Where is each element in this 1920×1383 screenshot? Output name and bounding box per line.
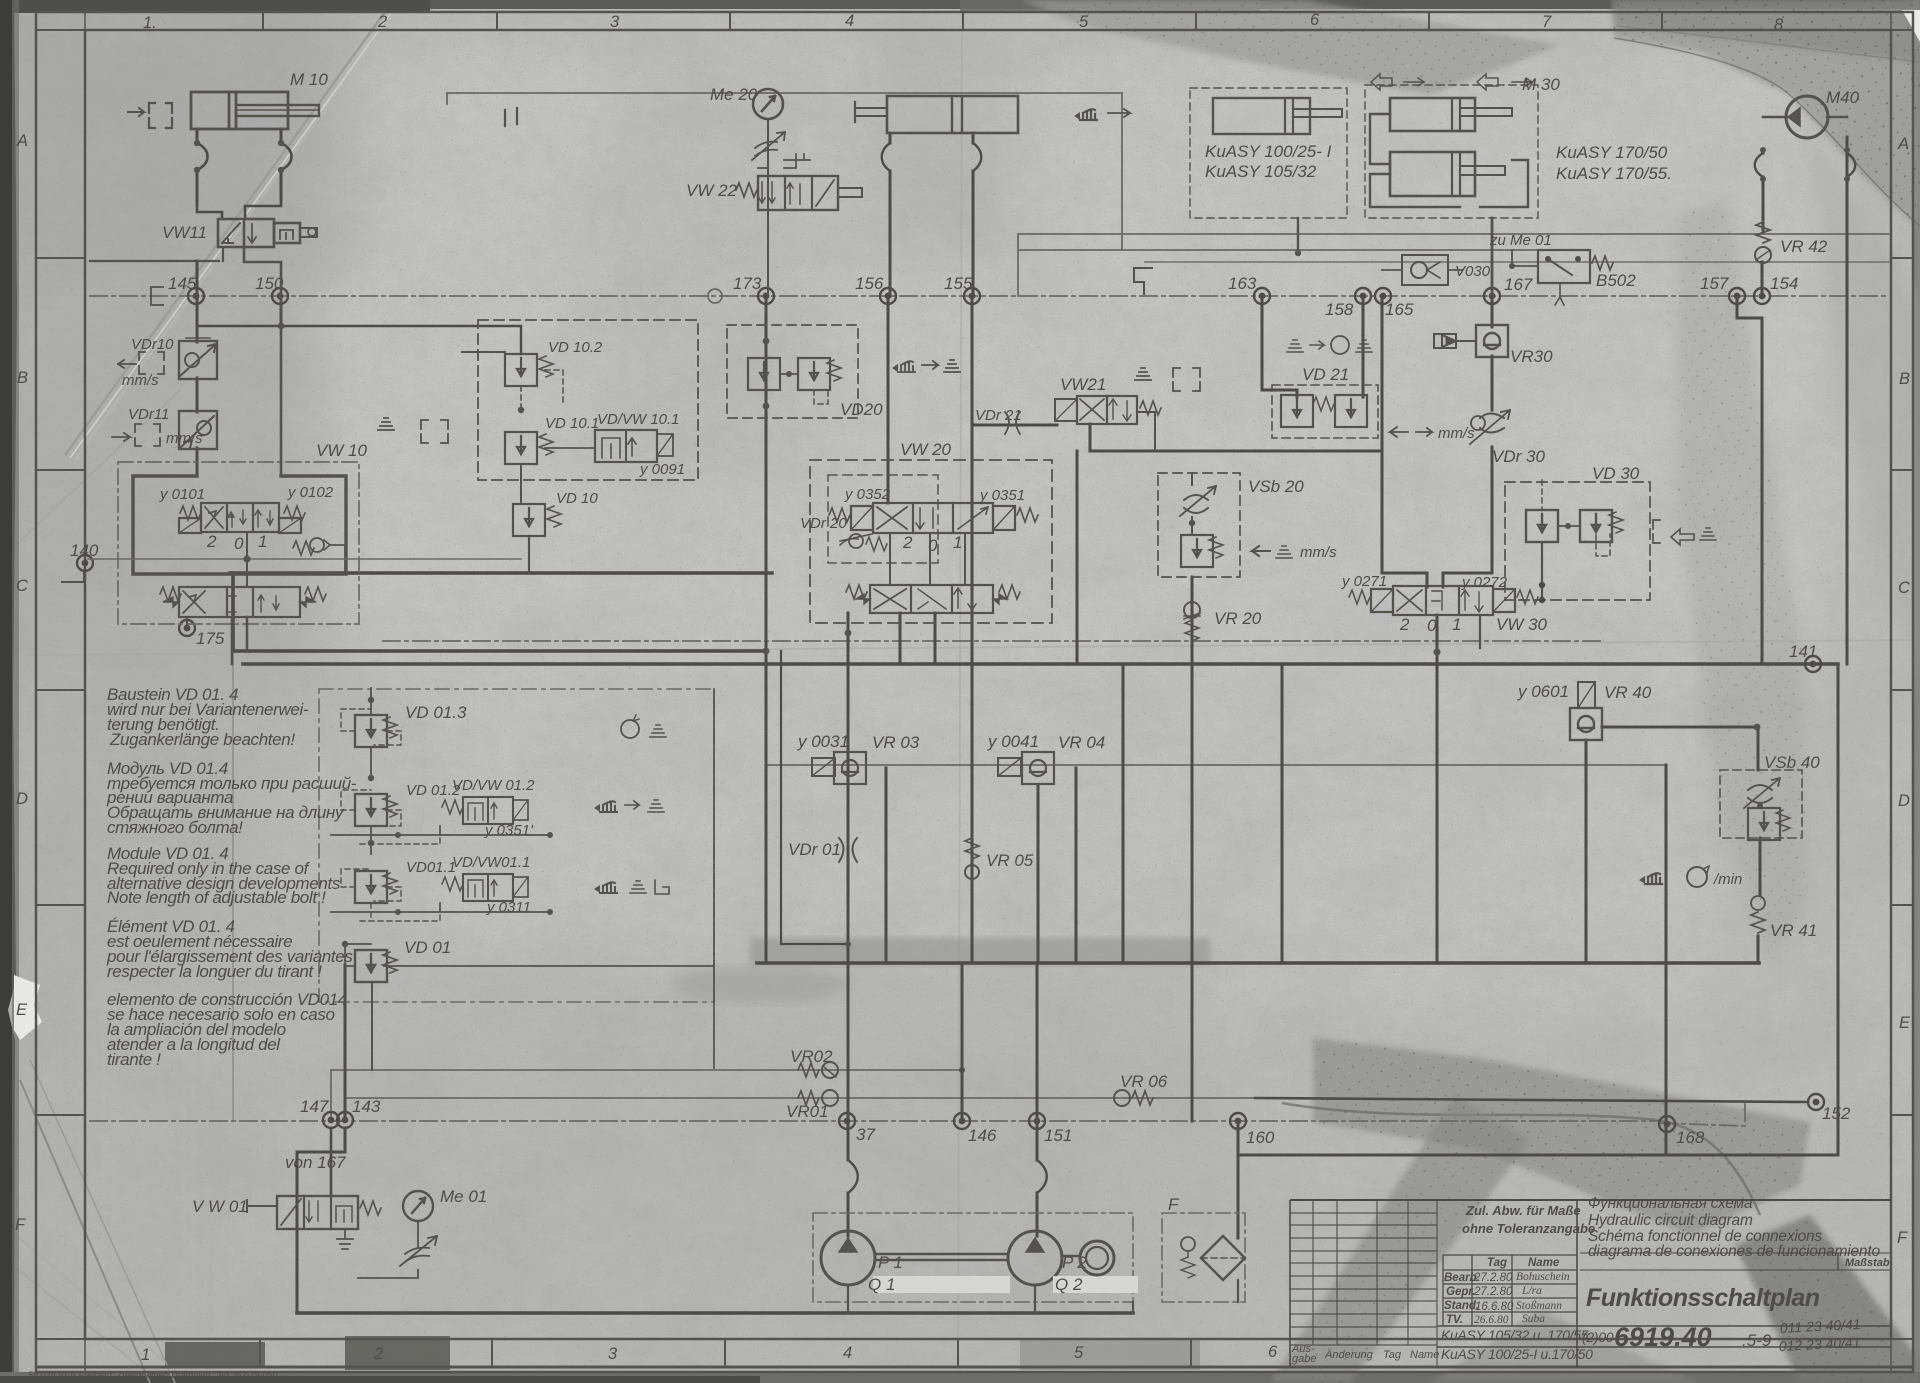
svg-text:.5-9: .5-9: [1742, 1331, 1772, 1350]
svg-text:VR 05: VR 05: [986, 851, 1034, 870]
svg-text:Bohuschein: Bohuschein: [1516, 1271, 1570, 1283]
svg-text:173: 173: [733, 274, 762, 293]
svg-text:27.2.80: 27.2.80: [1473, 1286, 1513, 1298]
svg-text:zu Me 01: zu Me 01: [1489, 232, 1552, 249]
svg-text:6919.40: 6919.40: [1614, 1322, 1712, 1352]
svg-text:1: 1: [258, 532, 267, 551]
svg-text:y 0311: y 0311: [486, 899, 531, 916]
svg-text:2: 2: [373, 1345, 383, 1363]
svg-text:Функциональная схема: Функциональная схема: [1588, 1195, 1753, 1212]
svg-text:165: 165: [1385, 300, 1414, 319]
svg-text:154: 154: [1770, 274, 1798, 293]
svg-text:C: C: [1898, 579, 1910, 597]
svg-text:155: 155: [944, 274, 973, 293]
svg-text:B: B: [17, 369, 28, 387]
svg-text:Me 20: Me 20: [710, 85, 758, 104]
svg-text:VD 01: VD 01: [404, 938, 451, 957]
svg-text:Änderung: Änderung: [1324, 1349, 1374, 1361]
svg-text:146: 146: [968, 1126, 997, 1145]
svg-text:156: 156: [855, 274, 884, 293]
svg-text:Gepr.: Gepr.: [1446, 1286, 1475, 1298]
svg-text:KuASY 105/32 u. 170/55: KuASY 105/32 u. 170/55: [1441, 1327, 1589, 1343]
svg-text:VR 04: VR 04: [1058, 733, 1105, 752]
svg-text:VSb 20: VSb 20: [1248, 477, 1304, 496]
svg-text:3: 3: [610, 13, 620, 31]
svg-text:0: 0: [1427, 616, 1437, 635]
svg-text:VD 10: VD 10: [556, 490, 598, 507]
svg-text:5: 5: [1074, 1344, 1084, 1362]
svg-text:VR30: VR30: [1510, 347, 1553, 366]
svg-text:0: 0: [234, 534, 244, 553]
svg-text:Me 01: Me 01: [440, 1187, 487, 1206]
svg-text:y 0041: y 0041: [987, 732, 1039, 751]
svg-text:167: 167: [1504, 275, 1533, 294]
svg-text:2: 2: [902, 533, 913, 552]
svg-text:Name: Name: [1528, 1257, 1560, 1269]
svg-text:D: D: [16, 790, 28, 808]
svg-text:VDr 01: VDr 01: [788, 840, 841, 859]
svg-text:Hydraulic circuit diagram: Hydraulic circuit diagram: [1588, 1212, 1753, 1229]
svg-text:y 0601: y 0601: [1517, 682, 1569, 701]
svg-text:26.6.80: 26.6.80: [1474, 1314, 1509, 1326]
svg-text:150: 150: [255, 274, 284, 293]
svg-text:VDr 30: VDr 30: [1492, 447, 1545, 466]
svg-text:Q 2: Q 2: [1055, 1275, 1083, 1294]
svg-text:F: F: [15, 1216, 26, 1234]
svg-text:7: 7: [1542, 13, 1552, 31]
svg-text:KuASY 100/25- I: KuASY 100/25- I: [1205, 142, 1332, 161]
svg-text:D: D: [1898, 792, 1910, 810]
svg-text:diagrama de conexiones de f: diagrama de conexiones de funcionamiento: [1588, 1243, 1880, 1260]
svg-text:C: C: [16, 577, 28, 595]
svg-text:6: 6: [1310, 11, 1320, 29]
svg-text:VDr10: VDr10: [131, 336, 174, 353]
svg-text:A: A: [1897, 135, 1909, 153]
svg-text:tirante !: tirante !: [107, 1050, 161, 1069]
svg-text:VD20: VD20: [840, 400, 883, 419]
svg-text:KuASY 100/25-I u.170/50: KuASY 100/25-I u.170/50: [1441, 1346, 1593, 1362]
svg-text:KuASY 170/50: KuASY 170/50: [1556, 143, 1668, 162]
svg-text:VD01.1: VD01.1: [406, 859, 456, 876]
svg-text:E: E: [16, 1001, 28, 1019]
svg-text:1: 1: [953, 533, 962, 552]
svg-text:VSb 40: VSb 40: [1764, 753, 1820, 772]
svg-text:y 0272: y 0272: [1461, 574, 1508, 591]
svg-text:Name: Name: [1410, 1349, 1439, 1361]
svg-text:gabe: gabe: [1292, 1353, 1316, 1365]
svg-text:59.028 VEB Freiberg, Zweigbetr: 59.028 VEB Freiberg, Zweigbetrieb Dramme…: [28, 1370, 278, 1380]
svg-text:Zugankerlänge beachten!: Zugankerlänge beachten!: [109, 730, 295, 749]
svg-text:8: 8: [1774, 16, 1784, 34]
svg-text:VW 10: VW 10: [316, 441, 368, 460]
svg-text:respecter la longuer du tir: respecter la longuer du tirant !: [107, 962, 322, 981]
svg-text:P 1: P 1: [878, 1253, 903, 1272]
svg-text:VD/VW 10.1: VD/VW 10.1: [597, 411, 680, 428]
svg-text:143: 143: [352, 1097, 381, 1116]
svg-text:mm/s: mm/s: [1438, 425, 1475, 442]
svg-text:Stoßmann: Stoßmann: [1516, 1300, 1562, 1312]
svg-text:ohne Toleranzangabe: ohne Toleranzangabe: [1462, 1221, 1595, 1236]
svg-text:VDr 20: VDr 20: [800, 515, 847, 532]
svg-text:y 0101: y 0101: [159, 486, 205, 503]
svg-text:V W 01: V W 01: [192, 1197, 248, 1216]
svg-text:141: 141: [1789, 642, 1817, 661]
svg-text:стяжного болта!: стяжного болта!: [107, 818, 243, 837]
svg-text:160: 160: [1246, 1128, 1275, 1147]
svg-text:VR 41: VR 41: [1770, 921, 1817, 940]
svg-text:VR 42: VR 42: [1780, 237, 1828, 256]
svg-text:Suba: Suba: [1522, 1313, 1545, 1325]
svg-text:VD 21: VD 21: [1302, 365, 1349, 384]
svg-text:168: 168: [1676, 1128, 1705, 1147]
svg-text:VD 10.2: VD 10.2: [548, 339, 603, 356]
svg-text:VD/VW01.1: VD/VW01.1: [452, 854, 530, 871]
svg-text:y 0351: y 0351: [979, 487, 1025, 504]
svg-text:152: 152: [1822, 1104, 1851, 1123]
svg-text:A: A: [16, 132, 28, 150]
svg-text:4: 4: [843, 1344, 852, 1362]
svg-text:VR01: VR01: [786, 1102, 829, 1121]
svg-text:2: 2: [1399, 615, 1410, 634]
svg-text:VR 20: VR 20: [1214, 609, 1262, 628]
svg-text:y 0031: y 0031: [797, 732, 849, 751]
svg-text:6: 6: [1268, 1343, 1278, 1361]
svg-text:VD 01.3: VD 01.3: [405, 703, 467, 722]
svg-text:von 167: von 167: [285, 1153, 346, 1172]
svg-text:L/ra: L/ra: [1521, 1285, 1542, 1297]
svg-text:y 0102: y 0102: [287, 484, 334, 501]
svg-text:151: 151: [1044, 1126, 1072, 1145]
svg-text:Maßstab: Maßstab: [1845, 1257, 1890, 1269]
svg-text:2: 2: [377, 13, 387, 31]
svg-text:Note length of adjustable bo: Note length of adjustable bolt !: [107, 888, 326, 907]
svg-text:140: 140: [70, 541, 99, 560]
svg-text:163: 163: [1228, 274, 1257, 293]
svg-text:27.2.80: 27.2.80: [1473, 1272, 1513, 1284]
svg-text:37: 37: [856, 1125, 875, 1144]
svg-text:mm/s: mm/s: [122, 372, 159, 389]
svg-text:Stand.: Stand.: [1444, 1300, 1479, 1312]
svg-text:157: 157: [1700, 274, 1729, 293]
svg-text:Zul. Abw. für Maße: Zul. Abw. für Maße: [1465, 1203, 1581, 1218]
svg-text:KuASY 170/55.: KuASY 170/55.: [1556, 164, 1672, 183]
svg-text:VR 06: VR 06: [1120, 1072, 1168, 1091]
svg-text:y 0352: y 0352: [844, 486, 891, 503]
svg-text:mm/s: mm/s: [1300, 544, 1337, 561]
svg-text:V030: V030: [1455, 263, 1491, 280]
svg-text:y 0091: y 0091: [639, 461, 685, 478]
svg-text:1.: 1.: [143, 14, 157, 32]
svg-text:VDr 21: VDr 21: [975, 407, 1022, 424]
svg-text:TV.: TV.: [1446, 1314, 1463, 1326]
svg-text:Q 1: Q 1: [868, 1275, 895, 1294]
svg-text:VD/VW 01.2: VD/VW 01.2: [452, 777, 535, 794]
svg-text:y 0351': y 0351': [484, 822, 534, 839]
svg-text:y 0271: y 0271: [1341, 573, 1387, 590]
svg-text:4: 4: [845, 12, 854, 30]
svg-text:VD 10.1: VD 10.1: [545, 415, 599, 432]
svg-text:158: 158: [1325, 300, 1354, 319]
svg-text:145: 145: [168, 274, 197, 293]
svg-text:(2)00: (2)00: [1582, 1329, 1614, 1345]
svg-text:VW 30: VW 30: [1496, 615, 1548, 634]
svg-text:VW21: VW21: [1060, 375, 1106, 394]
svg-text:147: 147: [300, 1097, 329, 1116]
svg-text:Tag: Tag: [1383, 1349, 1402, 1361]
svg-text:16.6.80: 16.6.80: [1475, 1301, 1514, 1313]
svg-text:mm/s: mm/s: [166, 430, 203, 447]
svg-text:175: 175: [196, 629, 225, 648]
svg-text:1: 1: [141, 1346, 150, 1364]
svg-text:F: F: [1168, 1195, 1180, 1214]
svg-text:Funktionsschaltplan: Funktionsschaltplan: [1586, 1284, 1820, 1312]
svg-text:KuASY 105/32: KuASY 105/32: [1205, 162, 1317, 181]
svg-text:M40: M40: [1826, 88, 1860, 107]
svg-text:/min: /min: [1713, 871, 1742, 888]
svg-text:3: 3: [608, 1345, 618, 1363]
svg-text:5: 5: [1079, 13, 1089, 31]
svg-text:VW 22: VW 22: [686, 181, 738, 200]
svg-text:VR 03: VR 03: [872, 733, 920, 752]
svg-text:B: B: [1899, 370, 1910, 388]
svg-text:VW11: VW11: [162, 223, 207, 242]
svg-text:VDr11: VDr11: [128, 406, 169, 423]
svg-text:E: E: [1899, 1014, 1911, 1032]
svg-text:VD 30: VD 30: [1592, 464, 1640, 483]
svg-text:2: 2: [206, 532, 217, 551]
svg-text:1: 1: [1452, 615, 1461, 634]
svg-text:M 10: M 10: [290, 70, 328, 89]
svg-text:Tag: Tag: [1487, 1257, 1507, 1269]
svg-text:VR 40: VR 40: [1604, 683, 1652, 702]
svg-text:VW 20: VW 20: [900, 440, 952, 459]
svg-text:F: F: [1897, 1229, 1908, 1247]
svg-text:B502: B502: [1596, 271, 1636, 290]
